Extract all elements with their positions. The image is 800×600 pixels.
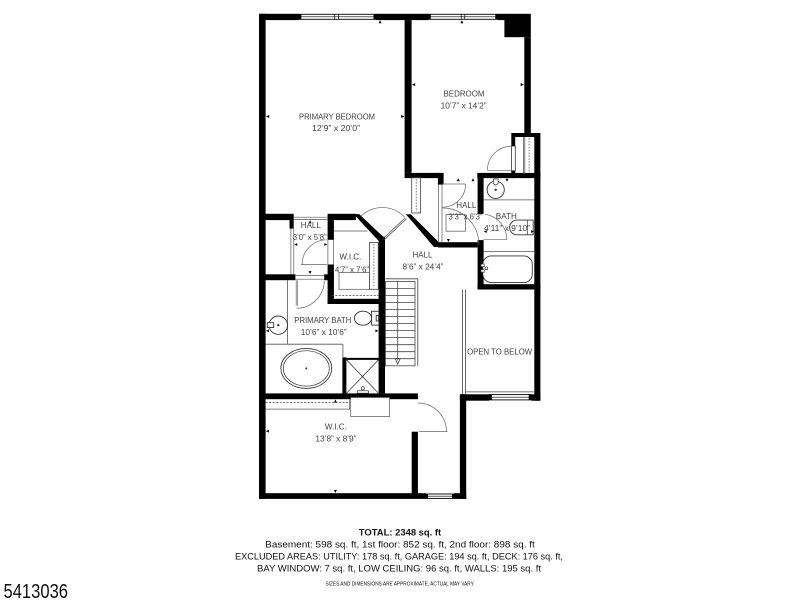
svg-text:3’3” x 6’3”: 3’3” x 6’3” <box>449 212 483 222</box>
svg-text:12’9” x 20’0”: 12’9” x 20’0” <box>312 123 360 133</box>
svg-text:OPEN TO BELOW: OPEN TO BELOW <box>467 346 533 356</box>
svg-text:EXCLUDED AREAS: UTILITY: 178 s: EXCLUDED AREAS: UTILITY: 178 sq. ft, GAR… <box>235 551 563 562</box>
svg-text:PRIMARY BATH: PRIMARY BATH <box>294 315 351 325</box>
svg-text:Basement: 598 sq. ft, 1st floo: Basement: 598 sq. ft, 1st floor: 852 sq.… <box>265 539 535 550</box>
svg-text:8’6” x 24’4”: 8’6” x 24’4” <box>403 261 444 271</box>
svg-text:W.I.C.: W.I.C. <box>339 252 361 262</box>
svg-text:3’0” x 5’8”: 3’0” x 5’8” <box>293 232 327 242</box>
svg-text:PRIMARY BEDROOM: PRIMARY BEDROOM <box>299 112 375 122</box>
svg-text:BATH: BATH <box>496 211 517 221</box>
svg-text:HALL: HALL <box>413 249 433 259</box>
svg-text:SIZES AND DIMENSIONS ARE APPRO: SIZES AND DIMENSIONS ARE APPROXIMATE, AC… <box>326 582 475 588</box>
svg-text:4’7” x 7’6”: 4’7” x 7’6” <box>335 264 369 274</box>
svg-text:TOTAL: 2348 sq. ft: TOTAL: 2348 sq. ft <box>359 528 442 539</box>
svg-text:10’7” x 14’2”: 10’7” x 14’2” <box>441 100 487 110</box>
svg-text:W.I.C.: W.I.C. <box>325 422 347 432</box>
svg-text:10’6” x 10’6”: 10’6” x 10’6” <box>301 327 347 337</box>
svg-text:HALL: HALL <box>301 220 321 230</box>
svg-text:HALL: HALL <box>456 200 476 210</box>
svg-text:13’8” x 8’9”: 13’8” x 8’9” <box>315 434 356 444</box>
svg-text:5413036: 5413036 <box>4 581 69 600</box>
svg-text:BAY WINDOW: 7 sq. ft, LOW CEIL: BAY WINDOW: 7 sq. ft, LOW CEILING: 96 sq… <box>257 563 541 574</box>
svg-text:BEDROOM: BEDROOM <box>444 88 485 98</box>
svg-text:4’11” x 9’10”: 4’11” x 9’10” <box>484 223 530 233</box>
